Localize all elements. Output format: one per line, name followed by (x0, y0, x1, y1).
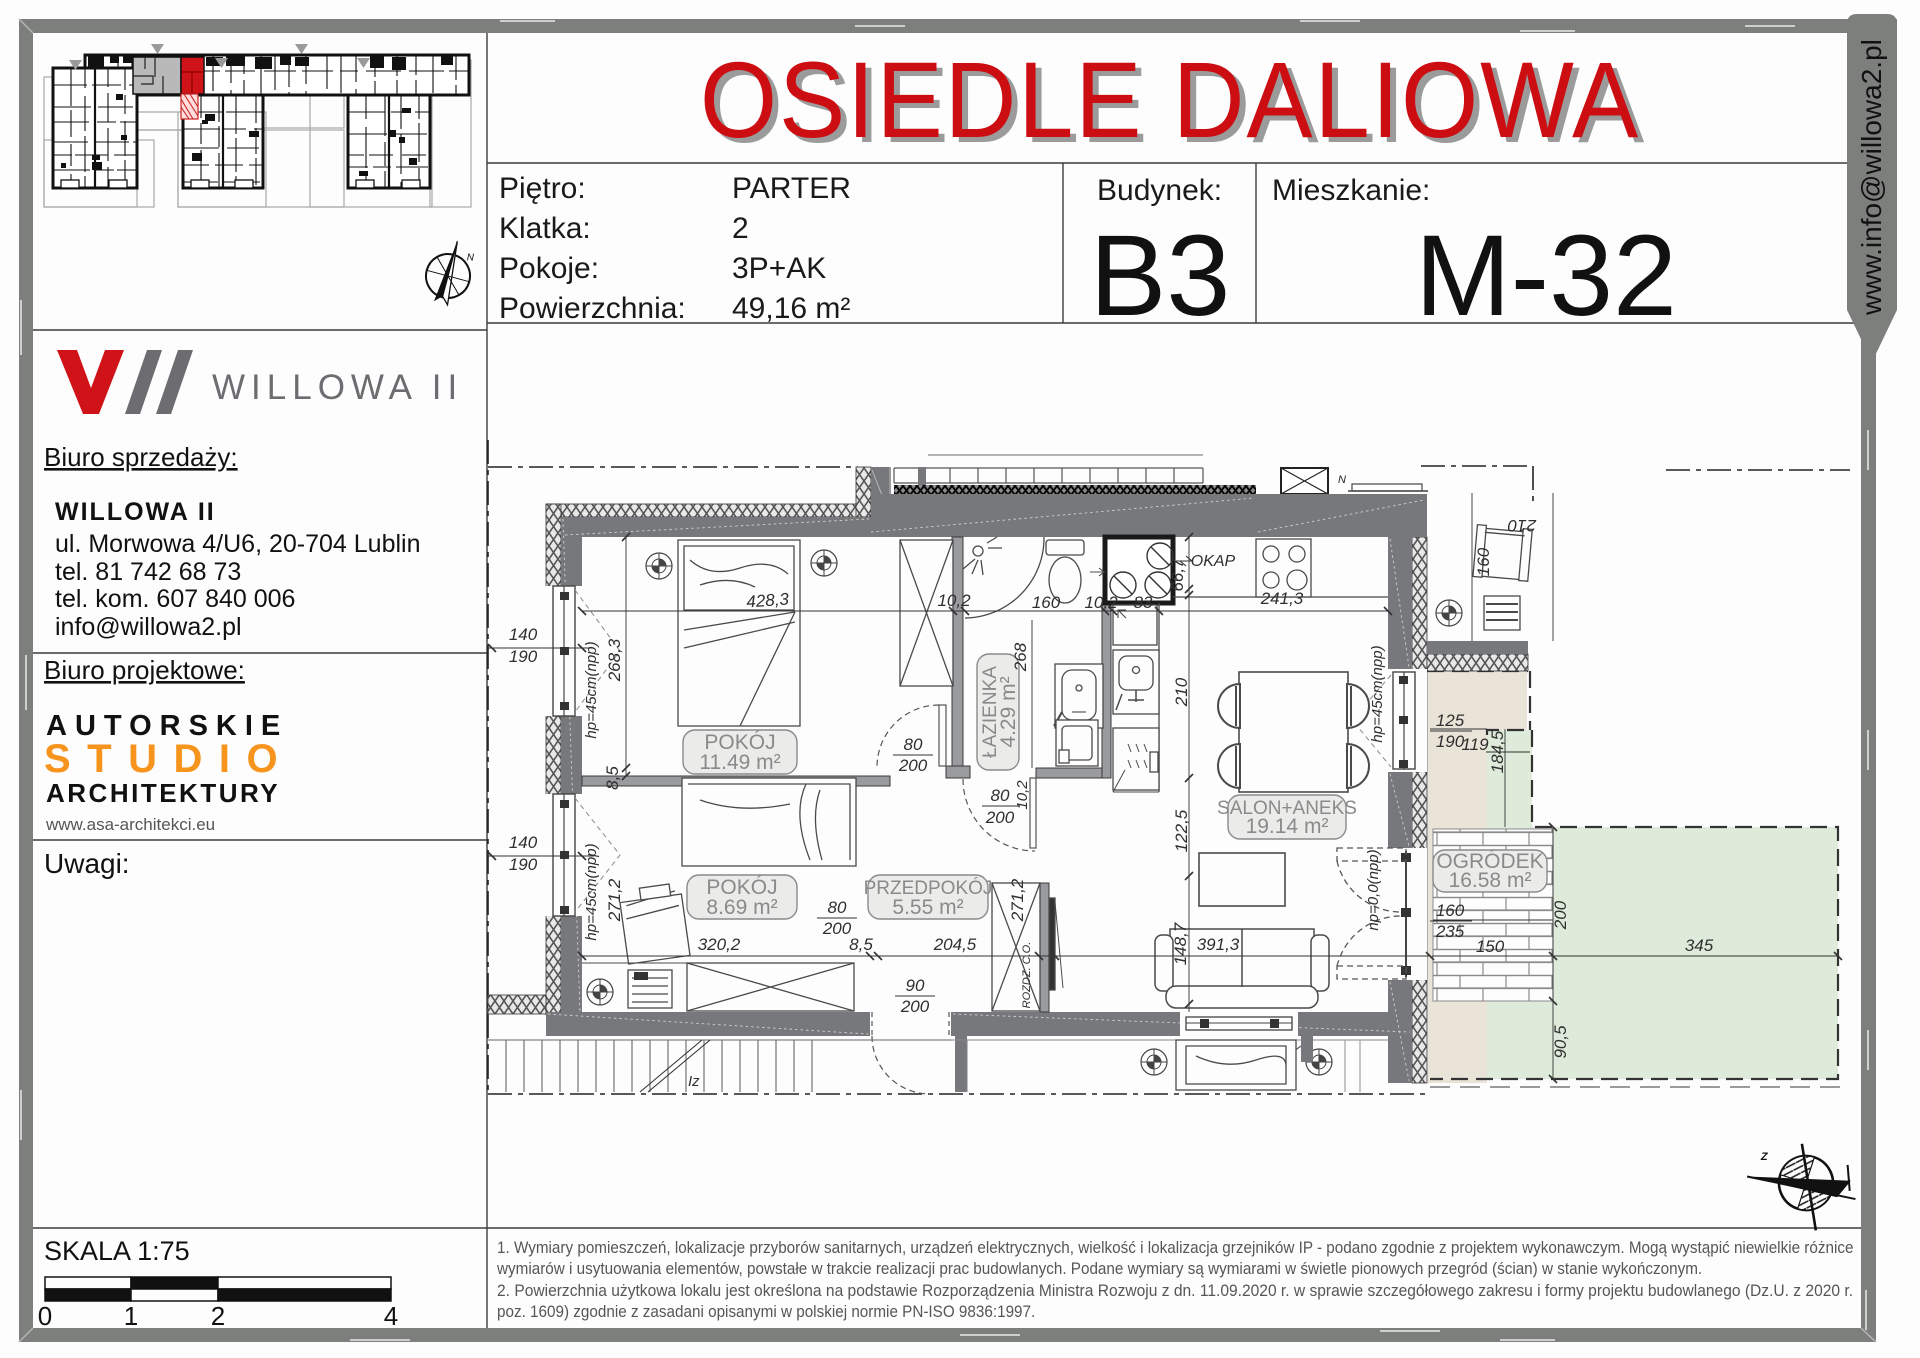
svg-text:190: 190 (509, 855, 538, 874)
svg-text:N: N (467, 252, 475, 263)
svg-text:tel. 81 742 68 73: tel. 81 742 68 73 (55, 558, 241, 586)
svg-text:B3: B3 (1090, 212, 1231, 340)
svg-text:5.55 m²: 5.55 m² (892, 896, 963, 919)
svg-text:OSIEDLE DALIOWA: OSIEDLE DALIOWA (700, 39, 1640, 160)
svg-text:345: 345 (1685, 936, 1714, 955)
svg-text:241,3: 241,3 (1260, 589, 1304, 608)
svg-text:ul. Morwowa 4/U6, 20-704 Lubli: ul. Morwowa 4/U6, 20-704 Lublin (55, 530, 420, 558)
svg-text:391,3: 391,3 (1197, 935, 1240, 954)
svg-text:140: 140 (509, 833, 538, 852)
svg-text:271,2: 271,2 (605, 878, 624, 922)
svg-text:90,5: 90,5 (1551, 1025, 1570, 1059)
svg-text:8,5: 8,5 (603, 766, 622, 790)
svg-text:150: 150 (1476, 937, 1505, 956)
svg-text:210: 210 (1172, 677, 1191, 707)
svg-text:Piętro:: Piętro: (499, 172, 586, 205)
svg-text:N: N (1338, 474, 1346, 486)
svg-text:hp=45cm(npp): hp=45cm(npp) (583, 843, 600, 940)
svg-text:8,5: 8,5 (849, 935, 873, 954)
svg-text:Biuro projektowe:: Biuro projektowe: (44, 655, 245, 685)
svg-text:148,7: 148,7 (1171, 922, 1190, 965)
svg-text:16.58 m²: 16.58 m² (1449, 869, 1532, 892)
svg-text:190: 190 (509, 647, 538, 666)
svg-text:Mieszkanie:: Mieszkanie: (1272, 174, 1430, 207)
svg-text:0: 0 (38, 1301, 52, 1331)
svg-text:320,2: 320,2 (698, 935, 741, 954)
svg-text:10,2: 10,2 (1014, 780, 1031, 810)
svg-text:204,5: 204,5 (933, 935, 977, 954)
svg-text:hp=45cm(npp): hp=45cm(npp) (1369, 645, 1386, 742)
svg-text:Iz: Iz (688, 1073, 700, 1090)
svg-text:ROZDZ. C.O.: ROZDZ. C.O. (1021, 942, 1033, 1009)
svg-text:SKALA 1:75: SKALA 1:75 (44, 1236, 190, 1266)
svg-text:Biuro sprzedaży:: Biuro sprzedaży: (44, 442, 238, 472)
svg-text:268,3: 268,3 (605, 638, 624, 682)
svg-text:WILLOWA II: WILLOWA II (55, 498, 216, 526)
svg-text:160: 160 (1032, 593, 1061, 612)
svg-text:235: 235 (1435, 922, 1465, 941)
svg-text:83: 83 (1134, 593, 1153, 612)
svg-text:268: 268 (1011, 642, 1030, 672)
svg-text:200: 200 (822, 919, 852, 938)
svg-text:2: 2 (211, 1301, 225, 1331)
svg-text:Z: Z (1760, 1151, 1769, 1163)
svg-text:WILLOWA II: WILLOWA II (212, 368, 463, 407)
svg-text:1: 1 (124, 1301, 138, 1331)
svg-text:Powierzchnia:: Powierzchnia: (499, 292, 686, 325)
svg-text:428,3: 428,3 (746, 590, 790, 612)
svg-text:49,16 m²: 49,16 m² (732, 292, 850, 325)
svg-text:140: 140 (509, 625, 538, 644)
svg-text:19.14 m²: 19.14 m² (1246, 815, 1329, 838)
svg-text:Klatka:: Klatka: (499, 212, 591, 245)
svg-text:3P+AK: 3P+AK (732, 252, 826, 285)
svg-text:OKAP: OKAP (1191, 553, 1236, 570)
svg-text:200: 200 (985, 808, 1015, 827)
svg-text:184,5: 184,5 (1488, 730, 1507, 773)
svg-text:4.29 m²: 4.29 m² (997, 676, 1020, 747)
svg-text:200: 200 (900, 997, 930, 1016)
svg-text:np=0,0(npp): np=0,0(npp) (1365, 849, 1382, 930)
svg-text:STUDIO: STUDIO (44, 737, 294, 781)
svg-text:80: 80 (904, 735, 923, 754)
svg-text:info@willowa2.pl: info@willowa2.pl (55, 613, 242, 641)
svg-text:www.info@willowa2.pl: www.info@willowa2.pl (1856, 39, 1887, 316)
svg-text:tel. kom. 607 840 006: tel. kom. 607 840 006 (55, 585, 295, 613)
svg-text:Pokoje:: Pokoje: (499, 252, 599, 285)
svg-text:80: 80 (828, 898, 847, 917)
svg-text:119: 119 (1461, 735, 1489, 754)
svg-text:11.49 m²: 11.49 m² (699, 751, 780, 774)
svg-text:80: 80 (991, 786, 1010, 805)
svg-text:200: 200 (1551, 900, 1570, 930)
svg-text:10,2: 10,2 (937, 591, 971, 610)
svg-text:210: 210 (1507, 516, 1537, 535)
svg-text:hp=45cm(npp): hp=45cm(npp) (583, 641, 600, 738)
svg-text:PARTER: PARTER (732, 172, 851, 205)
svg-text:10,2: 10,2 (1084, 593, 1118, 612)
svg-text:M-32: M-32 (1415, 212, 1677, 340)
svg-text:200: 200 (898, 756, 928, 775)
svg-text:271,2: 271,2 (1008, 878, 1027, 922)
svg-text:90: 90 (906, 976, 925, 995)
svg-text:ARCHITEKTURY: ARCHITEKTURY (46, 778, 280, 808)
svg-text:4: 4 (384, 1301, 398, 1331)
svg-text:122,5: 122,5 (1172, 809, 1191, 852)
svg-text:125: 125 (1436, 711, 1465, 730)
svg-text:160: 160 (1436, 901, 1465, 920)
svg-text:Uwagi:: Uwagi: (44, 848, 130, 879)
svg-text:160: 160 (1474, 547, 1493, 576)
svg-text:Budynek:: Budynek: (1097, 174, 1222, 207)
svg-text:2: 2 (732, 212, 749, 245)
svg-text:66,7: 66,7 (1168, 558, 1187, 592)
svg-text:8.69 m²: 8.69 m² (706, 896, 777, 919)
svg-text:www.asa-architekci.eu: www.asa-architekci.eu (45, 815, 215, 834)
svg-text:190: 190 (1436, 732, 1465, 751)
